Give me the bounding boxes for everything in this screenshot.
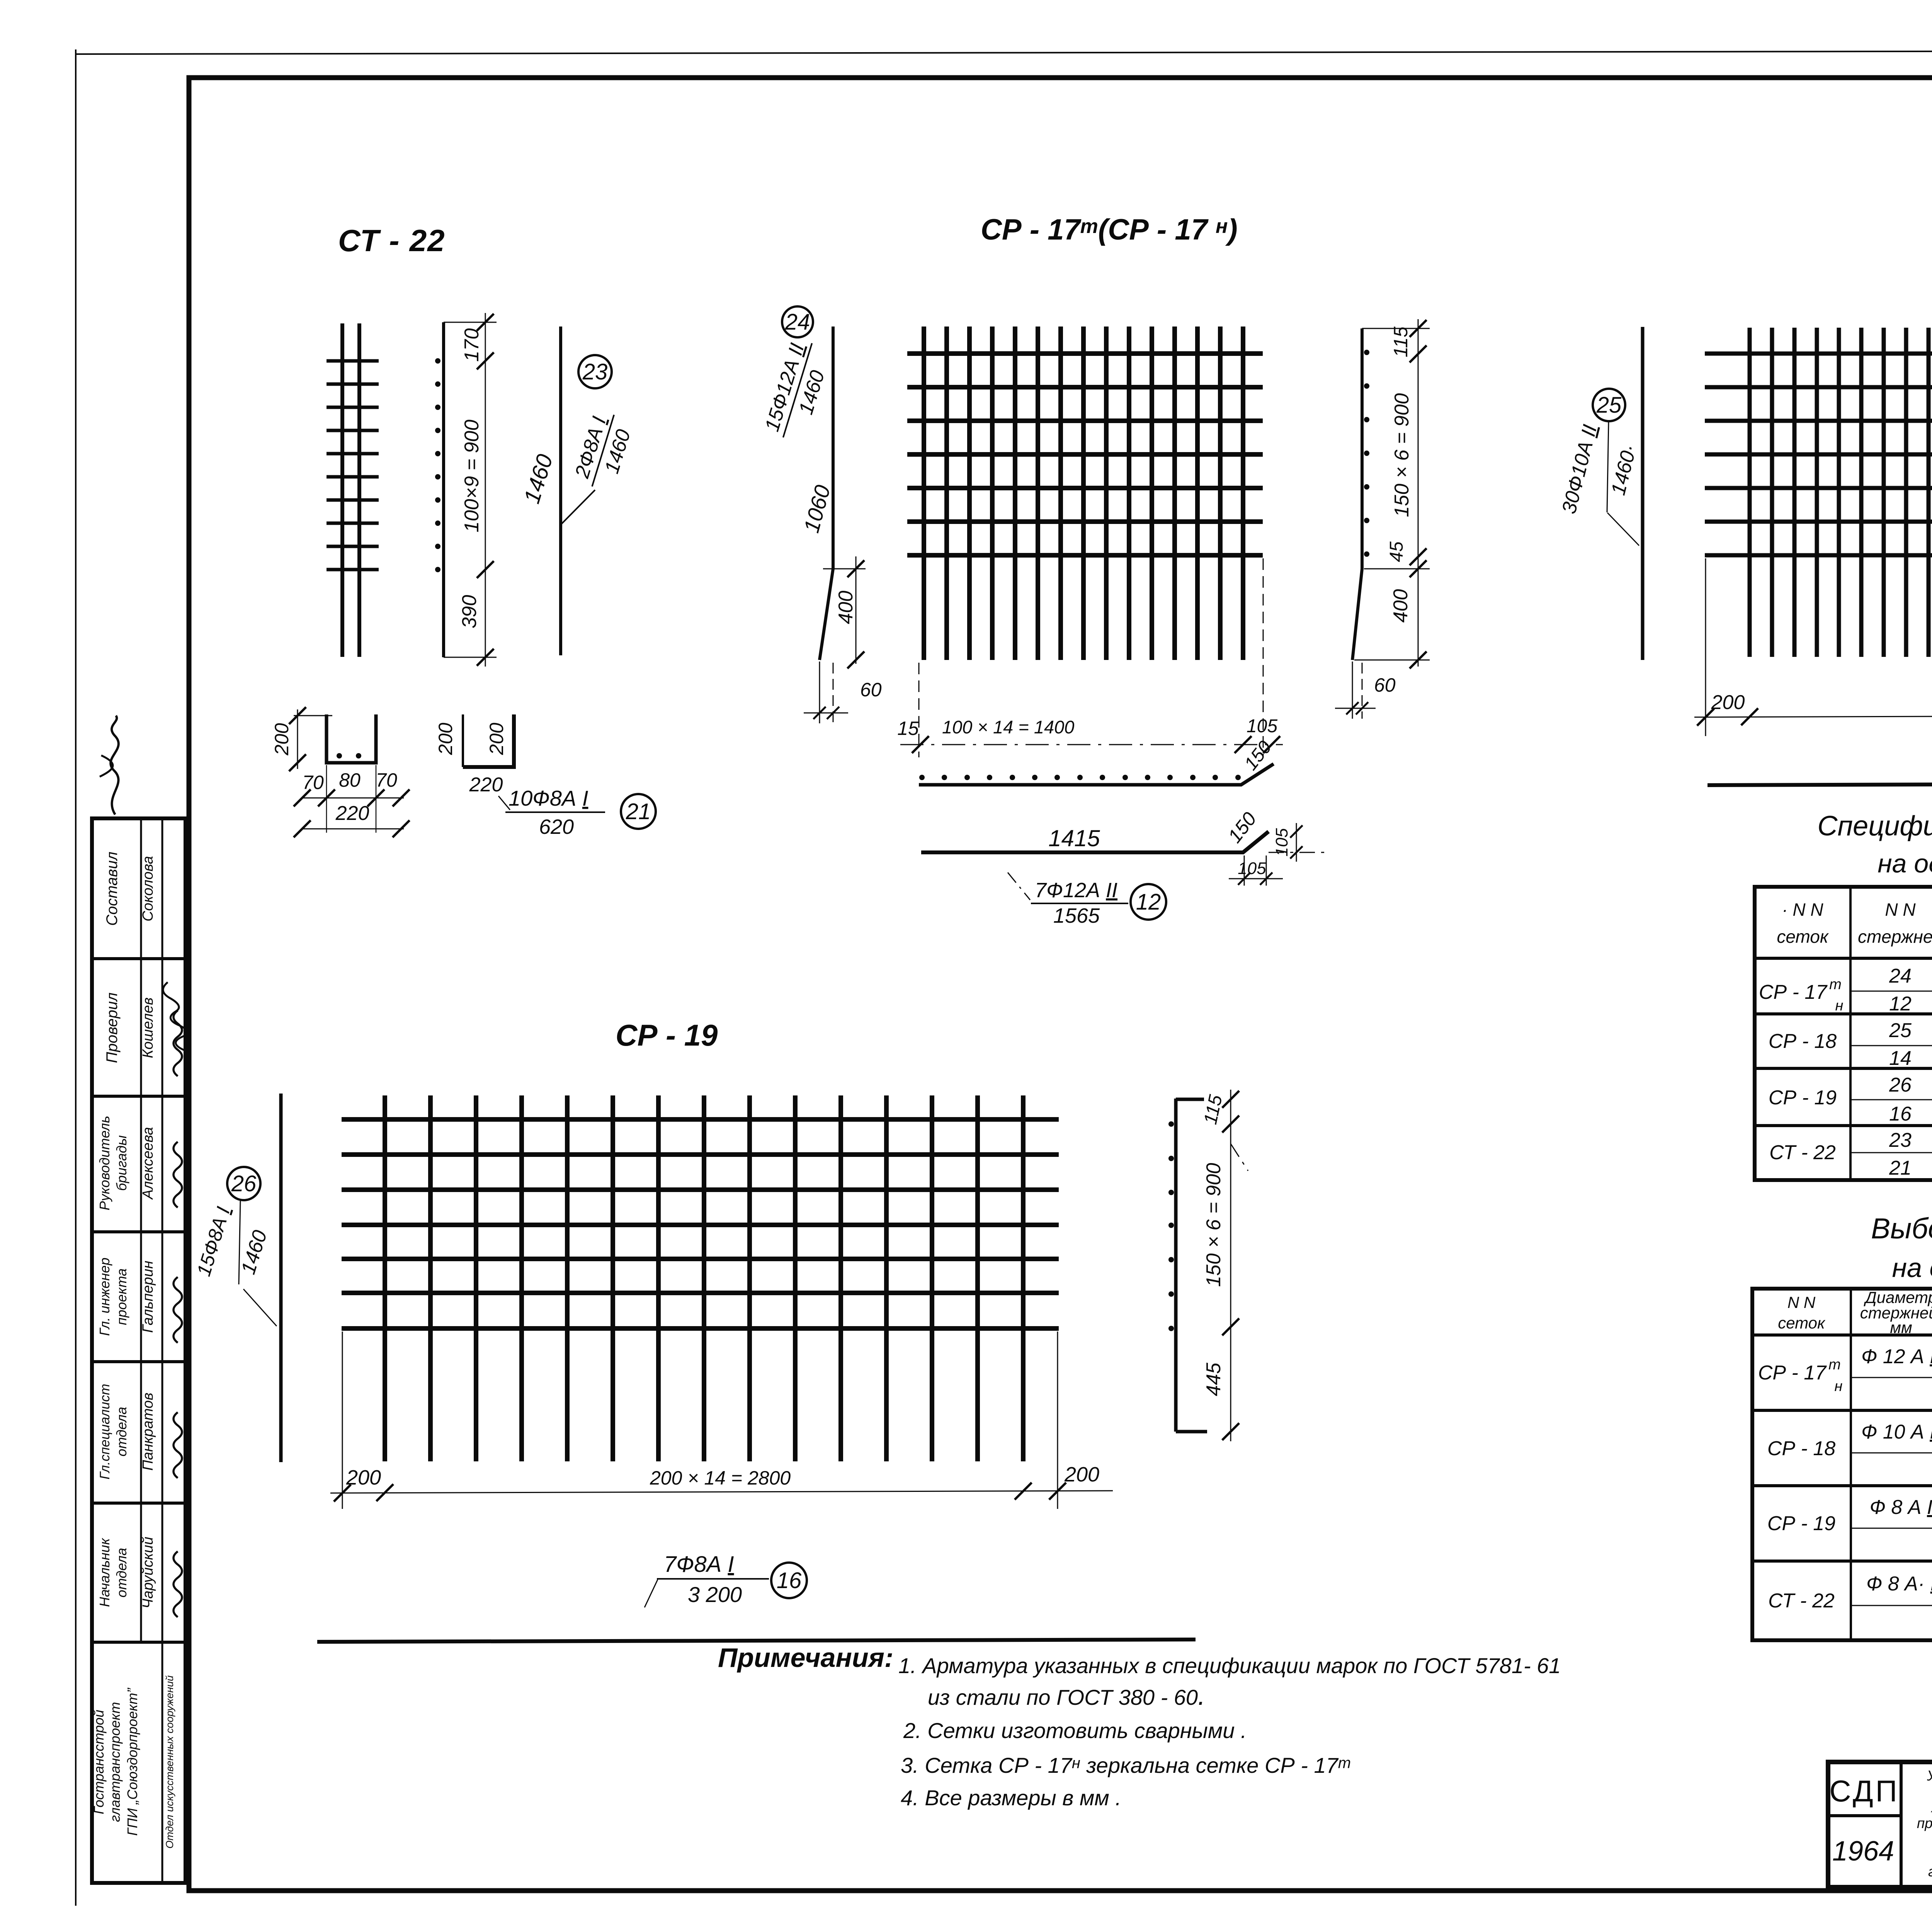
svg-text:Гострансстрой: Гострансстрой — [91, 1710, 107, 1815]
svg-text:Начальник: Начальник — [97, 1537, 112, 1607]
svg-text:СР - 18: СР - 18 — [1769, 1030, 1837, 1053]
svg-text:12: 12 — [1889, 993, 1912, 1015]
svg-text:200: 200 — [1064, 1463, 1099, 1486]
svg-text:21: 21 — [1889, 1157, 1912, 1179]
svg-text:620: 620 — [539, 815, 574, 838]
svg-text:7Ф12А II: 7Ф12А II — [1035, 879, 1117, 902]
svg-text:СР - 17: СР - 17 — [1758, 1362, 1827, 1384]
svg-text:т: т — [1829, 976, 1842, 993]
svg-text:Кошелев: Кошелев — [140, 997, 156, 1058]
svg-text:60: 60 — [1374, 674, 1396, 696]
svg-text:70: 70 — [376, 769, 397, 791]
svg-text:1565: 1565 — [1053, 904, 1100, 927]
svg-text:Соколова: Соколова — [140, 856, 156, 922]
svg-text:445: 445 — [1202, 1362, 1225, 1396]
svg-text:3. Сетка СР - 17н зеркальна: 3. Сетка СР - 17н зеркальна сетке СР - 1… — [901, 1753, 1351, 1777]
svg-text:мм: мм — [1890, 1318, 1912, 1337]
svg-text:220: 220 — [335, 802, 369, 825]
svg-text:бригады: бригады — [114, 1135, 129, 1191]
svg-text:200: 200 — [435, 723, 456, 755]
svg-text:Отдел искусственных сооружений: Отдел искусственных сооружений — [164, 1675, 175, 1849]
svg-text:на одну сетку .: на одну сетку . — [1878, 849, 1932, 878]
svg-text:390: 390 — [458, 595, 481, 629]
svg-text:СР - 18: СР - 18 — [1767, 1437, 1835, 1460]
svg-text:105: 105 — [1238, 859, 1266, 878]
svg-text:45: 45 — [1386, 541, 1407, 562]
svg-text:СТ - 22: СТ - 22 — [1768, 1590, 1835, 1612]
svg-text:отдела: отдела — [114, 1548, 129, 1598]
svg-text:21: 21 — [626, 799, 651, 824]
svg-text:городских мостов: городских мостов — [1928, 1864, 1932, 1879]
svg-text:Составил: Составил — [104, 852, 121, 926]
svg-text:4. Все размеры в мм: 4. Все размеры в мм . — [901, 1786, 1121, 1810]
svg-text:3 200: 3 200 — [688, 1582, 742, 1607]
svg-text:200: 200 — [271, 723, 293, 756]
svg-text:Гальперин: Гальперин — [140, 1261, 156, 1333]
svg-text:200: 200 — [486, 723, 507, 755]
svg-text:СТ - 22: СТ - 22 — [1769, 1141, 1836, 1164]
svg-text:СР - 19: СР - 19 — [1769, 1087, 1837, 1109]
svg-text:23: 23 — [1889, 1129, 1912, 1151]
svg-text:7Ф8А I: 7Ф8А I — [664, 1552, 734, 1577]
svg-text:220: 220 — [469, 774, 503, 796]
svg-text:26: 26 — [231, 1171, 257, 1196]
svg-text:70: 70 — [302, 772, 324, 793]
svg-text:Гл.специалист: Гл.специалист — [97, 1384, 112, 1480]
svg-text:1964: 1964 — [1832, 1836, 1894, 1867]
svg-text:Спецификация арматуры: Спецификация арматуры — [1818, 811, 1932, 842]
svg-text:26: 26 — [1889, 1074, 1912, 1096]
svg-text:Чаруйский: Чаруйский — [140, 1537, 156, 1609]
svg-text:на одну сетку: на одну сетку — [1892, 1253, 1932, 1283]
svg-text:СР - 17: СР - 17 — [1759, 981, 1828, 1003]
svg-text:СР - 19: СР - 19 — [616, 1018, 718, 1052]
svg-text:Унифицированные: Унифицированные — [1927, 1768, 1932, 1784]
svg-text:Выборка арматуры: Выборка арматуры — [1871, 1212, 1932, 1245]
svg-text:23: 23 — [582, 359, 608, 384]
svg-text:24: 24 — [1889, 965, 1912, 987]
svg-text:Ф 12 А II: Ф 12 А II — [1861, 1345, 1932, 1368]
svg-text:14: 14 — [1889, 1047, 1912, 1070]
svg-text:СР - 17т(СР - 17 н): СР - 17т(СР - 17 н) — [981, 213, 1238, 246]
svg-text:170: 170 — [461, 328, 483, 362]
svg-text:стержней: стержней — [1858, 927, 1932, 947]
svg-text:Ф 8 А· I: Ф 8 А· I — [1866, 1573, 1932, 1595]
svg-text:100 × 14 = 1400: 100 × 14 = 1400 — [942, 717, 1074, 737]
svg-text:СР - 19: СР - 19 — [1767, 1512, 1835, 1535]
svg-text:Руководитель: Руководитель — [97, 1116, 112, 1210]
svg-text:60: 60 — [860, 679, 882, 701]
svg-text:200: 200 — [1711, 691, 1745, 714]
svg-text:12: 12 — [1136, 889, 1161, 915]
svg-text:80: 80 — [339, 769, 361, 791]
svg-text:150 × 6 = 900: 150 × 6 = 900 — [1391, 393, 1413, 517]
svg-text:105: 105 — [1247, 716, 1277, 736]
svg-text:25: 25 — [1596, 393, 1622, 418]
svg-text:сеток: сеток — [1778, 1314, 1826, 1332]
svg-text:N N: N N — [1885, 900, 1916, 920]
svg-text:СДП: СДП — [1829, 1774, 1900, 1808]
svg-text:Гл. инженер: Гл. инженер — [97, 1258, 112, 1336]
svg-text:отдела: отдела — [114, 1407, 129, 1457]
svg-text:пролетные строения: пролетные строения — [1917, 1815, 1932, 1831]
svg-text:200 × 14 = 2800: 200 × 14 = 2800 — [650, 1467, 791, 1489]
svg-text:Ф 10 А II: Ф 10 А II — [1861, 1421, 1932, 1443]
svg-text:16: 16 — [777, 1568, 802, 1593]
svg-text:115: 115 — [1390, 327, 1412, 357]
svg-text:25: 25 — [1889, 1019, 1912, 1042]
svg-text:15: 15 — [897, 718, 919, 739]
svg-text:400: 400 — [1389, 589, 1412, 623]
svg-text:200: 200 — [346, 1466, 381, 1489]
svg-text:н: н — [1835, 998, 1844, 1014]
svg-text:24: 24 — [785, 310, 810, 335]
svg-text:10Ф8А I: 10Ф8А I — [509, 786, 588, 810]
svg-text:2. Сетки изготовить сварн: 2. Сетки изготовить сварными . — [903, 1718, 1247, 1743]
svg-text:100×9 = 900: 100×9 = 900 — [461, 420, 483, 532]
svg-text:из стали по ГОСТ 380 - 60: из стали по ГОСТ 380 - 60. — [928, 1680, 1206, 1711]
svg-text:Проверил: Проверил — [104, 993, 121, 1063]
svg-text:· N N: · N N — [1782, 900, 1823, 920]
svg-text:150 × 6 = 900: 150 × 6 = 900 — [1202, 1163, 1225, 1287]
svg-text:сеток: сеток — [1777, 927, 1829, 947]
svg-text:главтранспроект: главтранспроект — [107, 1702, 123, 1822]
svg-text:1. Арматура указанных в сп: 1. Арматура указанных в спецификации мар… — [898, 1653, 1561, 1678]
svg-text:Алексеева: Алексеева — [140, 1127, 156, 1200]
svg-text:16: 16 — [1889, 1103, 1912, 1125]
svg-text:т: т — [1828, 1357, 1841, 1373]
svg-text:400: 400 — [835, 591, 857, 624]
svg-text:105: 105 — [1272, 828, 1291, 857]
svg-text:ГПИ „Союздорпроект”: ГПИ „Союздорпроект” — [124, 1687, 140, 1836]
svg-text:Панкратов: Панкратов — [140, 1393, 156, 1471]
svg-text:проекта: проекта — [114, 1269, 129, 1325]
svg-text:Примечания:: Примечания: — [718, 1643, 893, 1673]
svg-text:1415: 1415 — [1048, 825, 1100, 851]
svg-text:Ф 8 А I: Ф 8 А I — [1870, 1496, 1932, 1519]
svg-text:н: н — [1835, 1378, 1843, 1395]
svg-text:N N: N N — [1787, 1293, 1816, 1311]
svg-text:СТ - 22: СТ - 22 — [338, 223, 446, 258]
